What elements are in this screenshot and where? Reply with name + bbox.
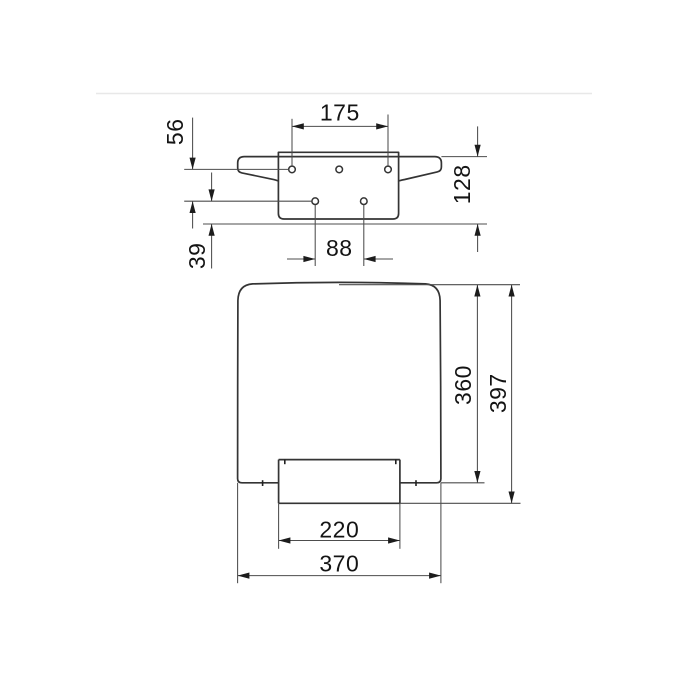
dim-label-220: 220 bbox=[319, 517, 359, 543]
mounting-hole bbox=[361, 198, 368, 205]
drawing-page: 175 56 39 88 128 bbox=[0, 0, 685, 685]
mounting-hole bbox=[336, 166, 343, 173]
dim-label-128: 128 bbox=[449, 164, 475, 204]
mounting-hole bbox=[312, 198, 319, 205]
dim-label-39: 39 bbox=[184, 243, 210, 270]
mounting-plate-outline bbox=[278, 152, 398, 219]
dim-label-370: 370 bbox=[319, 551, 359, 577]
dim-label-360: 360 bbox=[450, 365, 476, 405]
dim-label-88: 88 bbox=[326, 235, 353, 261]
top-view: 175 56 39 88 128 bbox=[162, 99, 487, 269]
mounting-hole bbox=[289, 166, 296, 173]
dim-label-397: 397 bbox=[485, 373, 511, 413]
left-wing-outline bbox=[238, 163, 279, 181]
mounting-hole bbox=[385, 166, 392, 173]
seat-top-edge-line bbox=[238, 157, 442, 163]
right-wing-outline bbox=[399, 163, 442, 181]
front-view: 360 397 220 370 bbox=[238, 282, 521, 583]
seat-outline bbox=[238, 282, 441, 482]
dim-label-56: 56 bbox=[162, 119, 188, 146]
technical-drawing-canvas: 175 56 39 88 128 bbox=[0, 0, 685, 685]
dim-label-175: 175 bbox=[320, 99, 360, 125]
